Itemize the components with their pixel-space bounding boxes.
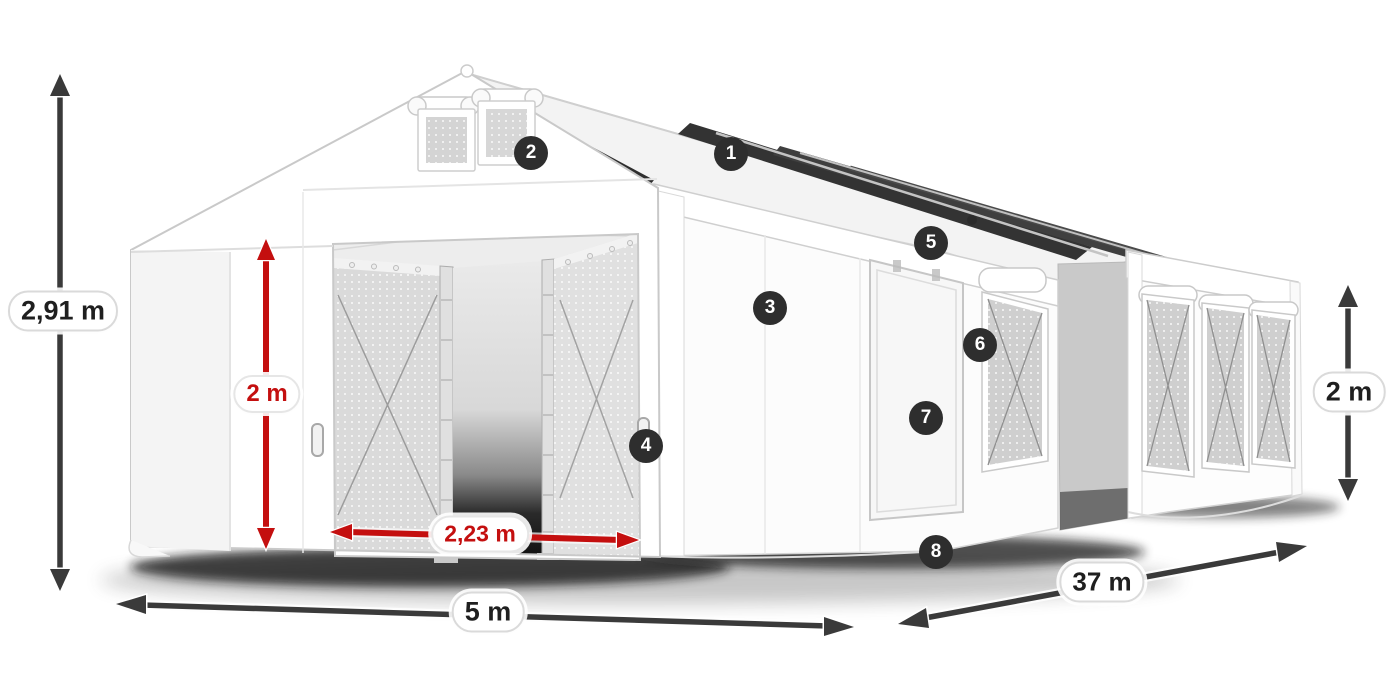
dimension-label-entrance-width: 2,23 m (431, 516, 529, 553)
annotation-overlay: 2,91 m2 m2,23 m5 m37 m2 m12345678 (0, 0, 1400, 700)
dimension-label-tent-length: 37 m (1059, 562, 1144, 603)
dimension-label-entrance-height: 2 m (233, 375, 300, 413)
feature-badge-3[interactable]: 3 (753, 291, 787, 325)
feature-badge-5[interactable]: 5 (914, 226, 948, 260)
dimension-label-total-height: 2,91 m (8, 291, 118, 332)
feature-badge-1[interactable]: 1 (714, 137, 748, 171)
feature-badge-6[interactable]: 6 (963, 328, 997, 362)
feature-badge-4[interactable]: 4 (629, 429, 663, 463)
feature-badge-8[interactable]: 8 (919, 535, 953, 569)
dimension-label-side-height: 2 m (1313, 372, 1386, 413)
product-diagram: 2,91 m2 m2,23 m5 m37 m2 m12345678 (0, 0, 1400, 700)
feature-badge-7[interactable]: 7 (909, 401, 943, 435)
feature-badge-2[interactable]: 2 (514, 136, 548, 170)
dimension-label-tent-width: 5 m (452, 592, 525, 633)
